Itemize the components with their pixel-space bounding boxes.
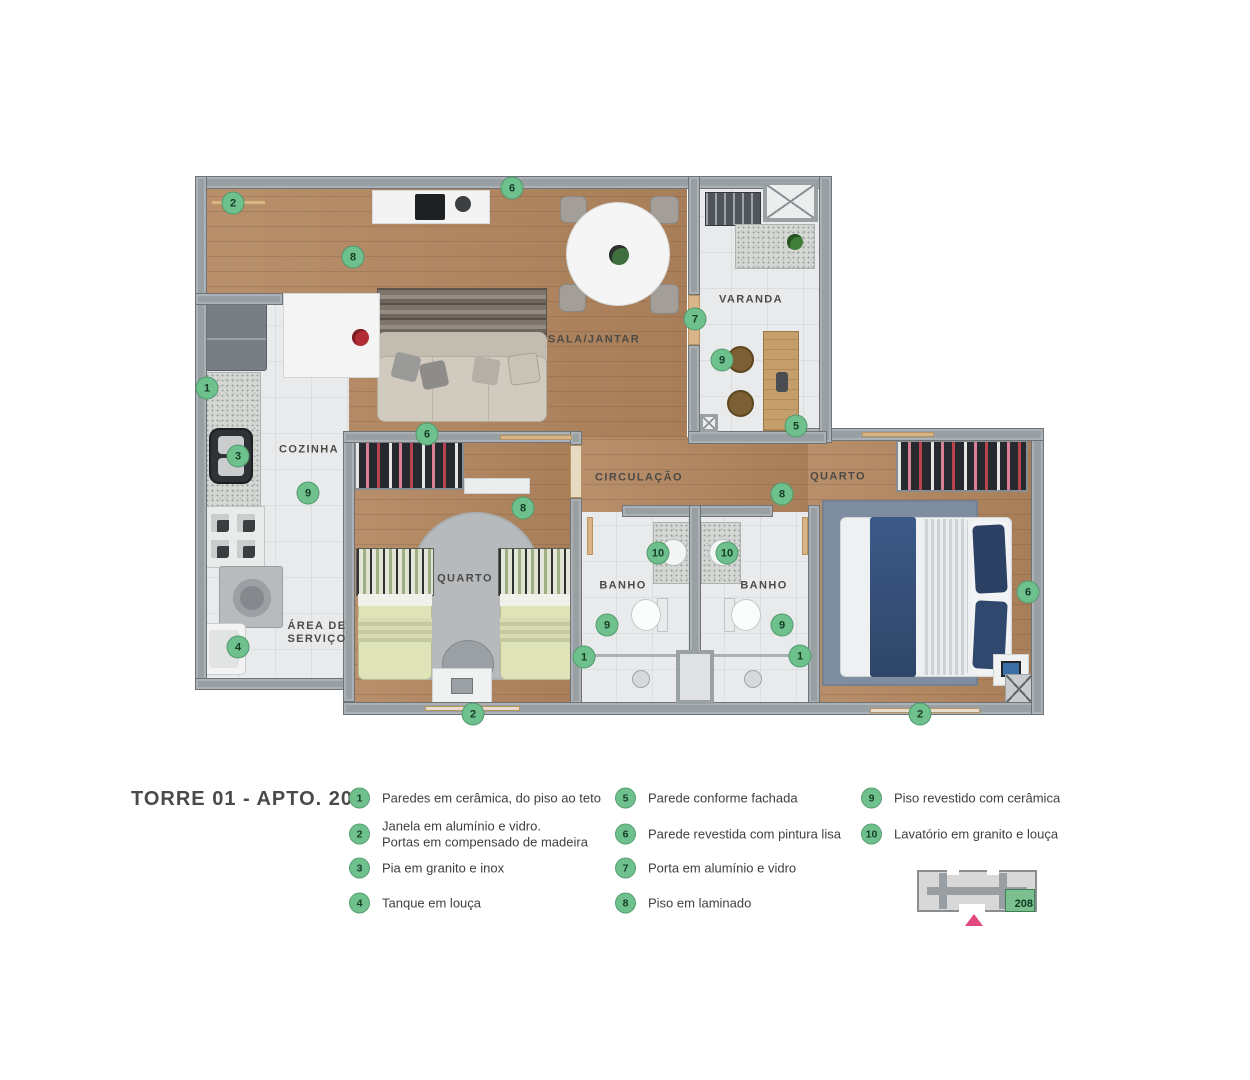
callout-number: 9 <box>779 619 785 631</box>
bed-pillow <box>972 524 1008 594</box>
callout-marker: 6 <box>1017 581 1040 604</box>
sliding-door-mark <box>500 435 572 440</box>
callout-number: 9 <box>305 487 311 499</box>
legend-item-number: 8 <box>615 893 636 914</box>
decor-box <box>415 194 445 220</box>
wall-left <box>195 176 207 690</box>
legend-item-text: Porta em alumínio e vidro <box>648 860 796 876</box>
callout-number: 6 <box>1025 586 1031 598</box>
callout-number: 1 <box>797 650 803 662</box>
callout-marker: 8 <box>771 483 794 506</box>
callout-marker: 8 <box>512 497 535 520</box>
room-label: VARANDA <box>719 294 783 307</box>
stove <box>203 506 265 568</box>
decor-bowl <box>455 196 471 212</box>
keyplan-unit-number: 208 <box>1015 899 1034 911</box>
callout-number: 7 <box>692 313 698 325</box>
callout-number: 1 <box>581 651 587 663</box>
callout-marker: 3 <box>227 445 250 468</box>
legend-item-number: 7 <box>615 858 636 879</box>
table-plant <box>609 245 629 265</box>
wall-kitchen-top <box>195 293 283 305</box>
wall-bedroom2-left <box>808 505 820 704</box>
plan-title: TORRE 01 - APTO. 208 <box>131 788 365 811</box>
callout-marker: 9 <box>297 482 320 505</box>
keyplan-corridor <box>939 873 947 909</box>
callout-marker: 10 <box>647 542 670 565</box>
keyplan-notch <box>959 904 985 914</box>
keyplan-unit-highlight: 208 <box>1005 889 1035 912</box>
legend-item-number: 10 <box>861 824 882 845</box>
balcony-grill <box>705 192 761 226</box>
callout-number: 4 <box>235 641 241 653</box>
callout-marker: 6 <box>416 423 439 446</box>
callout-marker: 9 <box>771 614 794 637</box>
building-key-plan: 208 <box>913 866 1045 930</box>
wall-balcony-right <box>819 176 832 443</box>
legend-item: 2 Janela em alumínio e vidro. Portas em … <box>349 819 588 850</box>
callout-number: 10 <box>721 547 733 559</box>
room-label: QUARTO <box>437 573 493 586</box>
elevator-shaft-hatch <box>763 181 818 222</box>
twin-bed <box>498 548 576 682</box>
bed-blanket <box>870 517 916 677</box>
duct-hatch <box>700 414 718 432</box>
legend-item: 7 Porta em alumínio e vidro <box>615 858 796 879</box>
legend-item-number: 9 <box>861 788 882 809</box>
callout-number: 8 <box>520 502 526 514</box>
bedroom1-door <box>570 445 582 498</box>
callout-number: 8 <box>779 488 785 500</box>
callout-number: 2 <box>917 708 923 720</box>
legend-item-number: 6 <box>615 824 636 845</box>
dining-table <box>566 202 670 306</box>
apartment-floor-plan: SALA/JANTARVARANDACOZINHAÁREA DE SERVIÇO… <box>195 176 1045 732</box>
sofa <box>377 332 547 428</box>
shower-glass <box>585 654 687 657</box>
callout-number: 2 <box>470 708 476 720</box>
legend-item-number: 1 <box>349 788 370 809</box>
wall-balcony-left-lower <box>688 345 700 443</box>
sideboard <box>372 190 490 224</box>
legend-item-text: Paredes em cerâmica, do piso ao teto <box>382 790 601 806</box>
legend-item: 6 Parede revestida com pintura lisa <box>615 824 841 845</box>
wall-kitchen-divider <box>343 431 355 702</box>
callout-marker: 2 <box>462 703 485 726</box>
bar-stool <box>727 390 754 417</box>
callout-number: 9 <box>719 354 725 366</box>
legend-item-text: Tanque em louça <box>382 895 481 911</box>
wardrobe <box>354 440 464 490</box>
sofa-pillow <box>419 360 450 391</box>
twin-bed <box>356 548 434 682</box>
legend-item: 10 Lavatório em granito e louça <box>861 824 1058 845</box>
legend-item-text: Janela em alumínio e vidro. Portas em co… <box>382 819 588 850</box>
callout-marker: 2 <box>222 192 245 215</box>
room-label: COZINHA <box>279 444 339 457</box>
keyplan-notch <box>987 868 999 875</box>
wall-balcony-left-upper <box>688 176 700 295</box>
sliding-door-mark <box>862 432 934 437</box>
callout-marker: 1 <box>196 377 219 400</box>
callout-number: 9 <box>604 619 610 631</box>
legend-item: 4 Tanque em louça <box>349 893 481 914</box>
legend-item-text: Parede revestida com pintura lisa <box>648 826 841 842</box>
legend-item: 5 Parede conforme fachada <box>615 788 798 809</box>
callout-marker: 9 <box>596 614 619 637</box>
wall-bedroom1-right <box>570 498 582 704</box>
sofa-throw <box>507 352 541 386</box>
double-bed <box>840 517 1012 677</box>
wardrobe-shelf <box>464 478 530 494</box>
bathroom-door <box>587 517 593 555</box>
toilet <box>723 596 761 634</box>
legend-item: 3 Pia em granito e inox <box>349 858 504 879</box>
desk <box>432 668 492 704</box>
floor-plan-page: SALA/JANTARVARANDACOZINHAÁREA DE SERVIÇO… <box>0 0 1250 1080</box>
callout-marker: 1 <box>789 645 812 668</box>
callout-marker: 10 <box>716 542 739 565</box>
legend-item: 1 Paredes em cerâmica, do piso ao teto <box>349 788 601 809</box>
legend-item-number: 2 <box>349 824 370 845</box>
callout-number: 3 <box>235 450 241 462</box>
callout-number: 5 <box>793 420 799 432</box>
legend-item-text: Pia em granito e inox <box>382 860 504 876</box>
wardrobe <box>896 440 1028 492</box>
toilet <box>631 596 669 634</box>
callout-marker: 9 <box>711 349 734 372</box>
callout-number: 1 <box>204 382 210 394</box>
keyplan-location-arrow <box>965 914 983 926</box>
fridge <box>205 303 267 371</box>
legend-item-text: Lavatório em granito e louça <box>894 826 1058 842</box>
laptop <box>451 678 473 694</box>
callout-number: 8 <box>350 251 356 263</box>
callout-number: 10 <box>652 547 664 559</box>
sofa-pillow <box>471 356 501 386</box>
callout-marker: 7 <box>684 308 707 331</box>
legend-item-number: 5 <box>615 788 636 809</box>
bathroom-door <box>802 517 808 555</box>
wall-right <box>1031 431 1044 715</box>
x-stool <box>1005 674 1033 704</box>
balcony-counter <box>735 224 815 269</box>
legend-item-text: Parede conforme fachada <box>648 790 798 806</box>
callout-marker: 2 <box>909 703 932 726</box>
legend-item-text: Piso em laminado <box>648 895 751 911</box>
room-label: BANHO <box>740 580 787 593</box>
room-label: ÁREA DE SERVIÇO <box>287 620 346 646</box>
callout-number: 6 <box>424 428 430 440</box>
wall-kitchen-bottom <box>195 678 355 690</box>
callout-marker: 1 <box>573 646 596 669</box>
legend-item: 8 Piso em laminado <box>615 893 751 914</box>
shower-drain <box>744 670 762 688</box>
legend-item-text: Piso revestido com cerâmica <box>894 790 1060 806</box>
flower-vase <box>352 329 369 346</box>
legend-item-number: 3 <box>349 858 370 879</box>
callout-number: 2 <box>230 197 236 209</box>
balcony-plant <box>787 234 803 250</box>
room-label: BANHO <box>599 580 646 593</box>
washing-machine <box>219 566 283 628</box>
room-label: SALA/JANTAR <box>548 334 640 347</box>
callout-number: 6 <box>509 182 515 194</box>
legend-item: 9 Piso revestido com cerâmica <box>861 788 1060 809</box>
legend-item-number: 4 <box>349 893 370 914</box>
shower-drain <box>632 670 650 688</box>
plumbing-shaft-hatch <box>676 650 714 704</box>
keyplan-notch <box>947 868 959 875</box>
wall-balcony-bottom <box>688 431 827 444</box>
callout-marker: 5 <box>785 415 808 438</box>
callout-marker: 6 <box>501 177 524 200</box>
room-label: CIRCULAÇÃO <box>595 472 683 485</box>
callout-marker: 4 <box>227 636 250 659</box>
room-label: QUARTO <box>810 471 866 484</box>
callout-marker: 8 <box>342 246 365 269</box>
